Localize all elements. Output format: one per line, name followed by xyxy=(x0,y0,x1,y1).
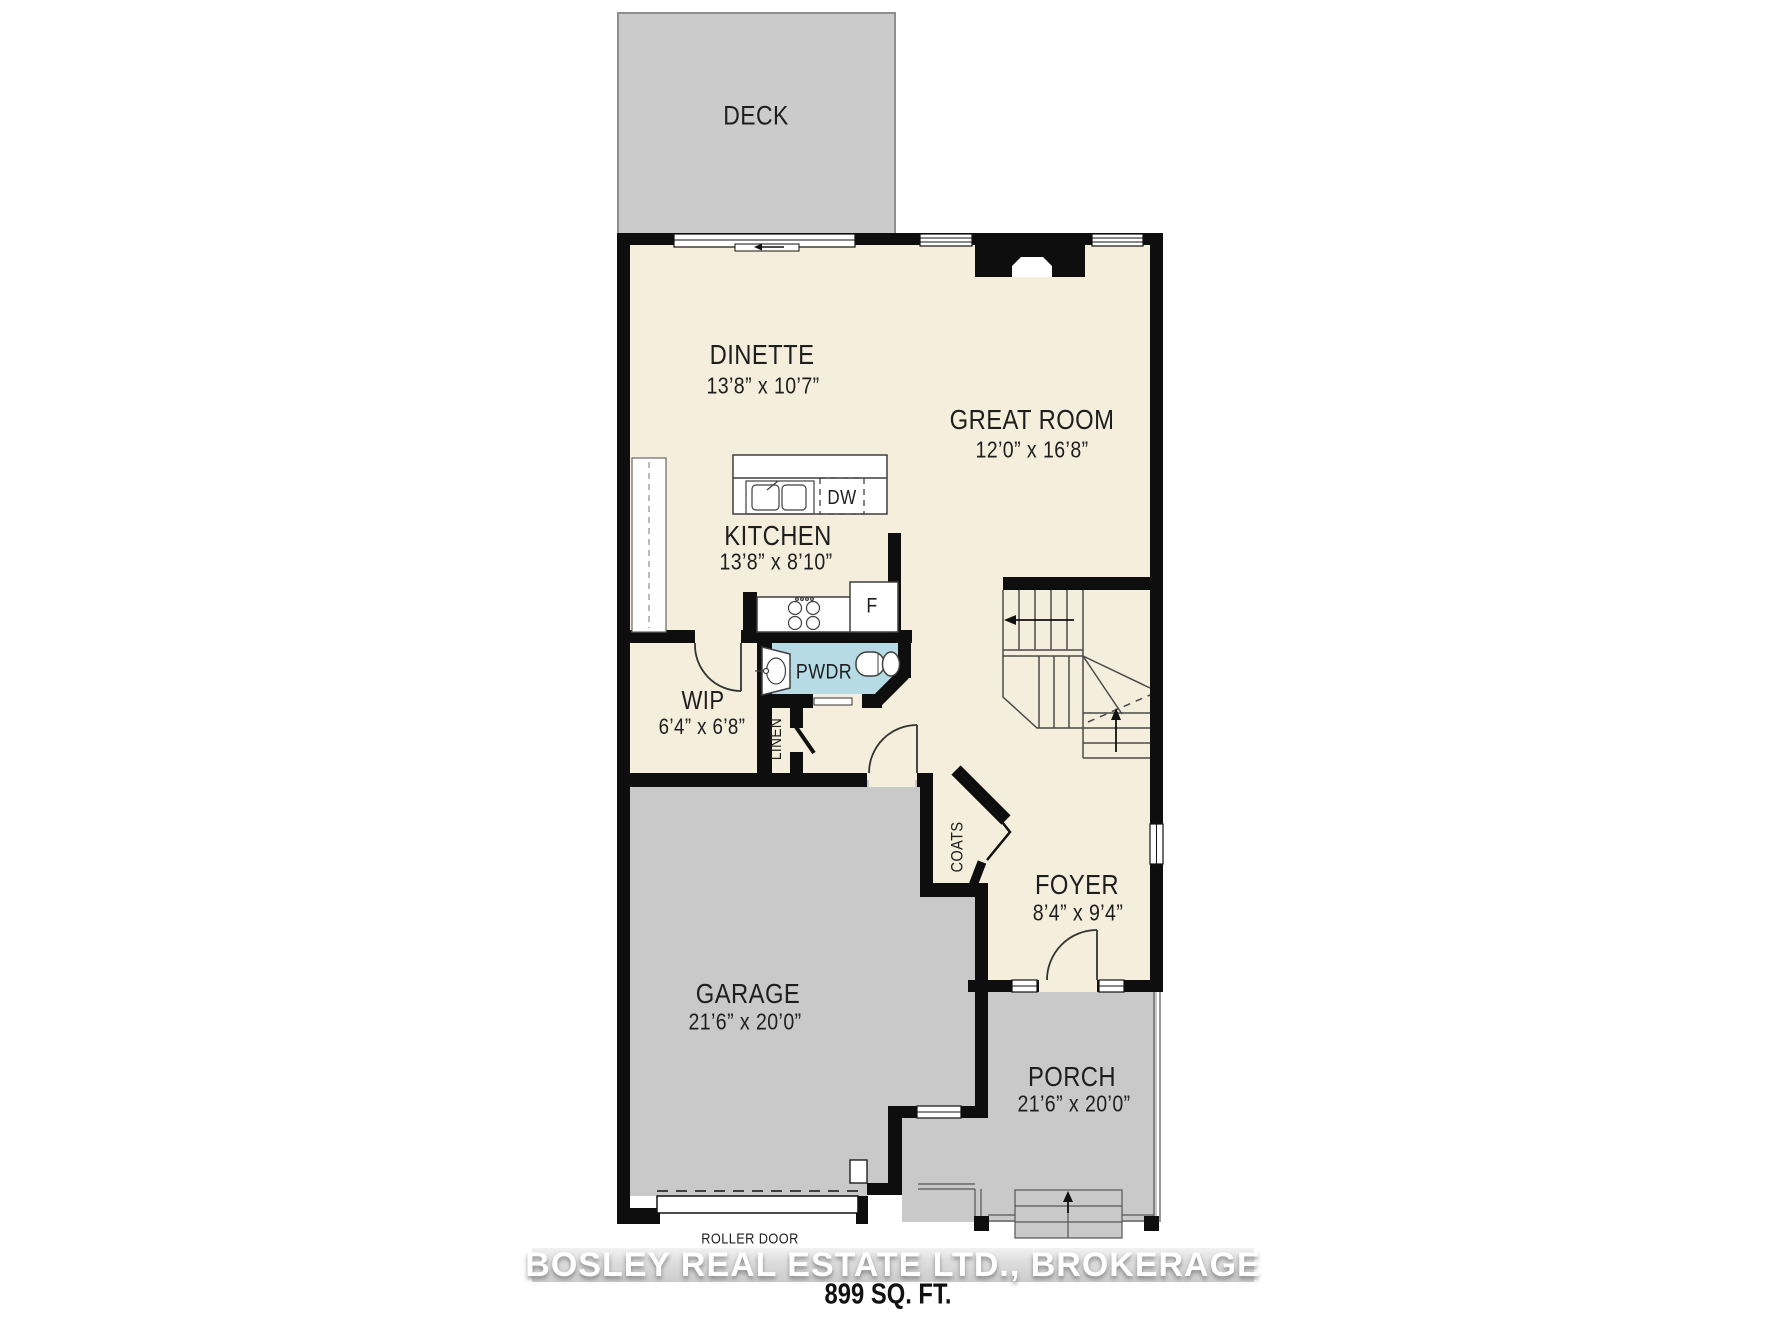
wip-dims: 6’4” x 6’8” xyxy=(659,716,746,738)
pwdr-door-leaf xyxy=(814,698,852,705)
pwdr-toilet xyxy=(856,652,900,676)
sidelight-right xyxy=(1099,980,1124,992)
watermark-band: BOSLEY REAL ESTATE LTD., BROKERAGE xyxy=(532,1248,1254,1282)
porch-post-right xyxy=(1144,1216,1159,1231)
front-door-opening xyxy=(1039,980,1097,992)
roller-door-label: ROLLER DOOR xyxy=(701,1232,798,1247)
foyer-dims: 8’4” x 9’4” xyxy=(1033,902,1124,925)
wip-door-opening xyxy=(695,630,741,643)
wip-label: WIP xyxy=(681,687,724,713)
kitchen-dims: 13’8” x 8’10” xyxy=(719,551,832,574)
porch-post-left xyxy=(974,1216,989,1231)
linen-label: LINEN xyxy=(769,718,785,760)
pwdr-label: PWDR xyxy=(796,662,852,683)
pantry-counter xyxy=(632,458,666,632)
dinette-dims: 13’8” x 10’7” xyxy=(706,375,819,398)
garage-side-door xyxy=(850,1160,867,1183)
fireplace-niche xyxy=(1012,257,1052,277)
deck-label: DECK xyxy=(723,103,788,130)
coats-label: COATS xyxy=(949,822,966,873)
window-top-left xyxy=(920,234,972,246)
porch-steps xyxy=(1015,1190,1122,1238)
sidelight-left xyxy=(1012,980,1037,992)
dishwasher-label: DW xyxy=(827,488,856,508)
kitchen-island xyxy=(733,455,887,514)
garage-door-opening xyxy=(869,773,915,787)
dinette-label: DINETTE xyxy=(710,341,815,369)
great-room-dims: 12’0” x 16’8” xyxy=(975,439,1088,462)
garage-label: GARAGE xyxy=(696,980,800,1008)
porch-label: PORCH xyxy=(1028,1063,1116,1091)
window-top-right xyxy=(1092,234,1143,246)
window-jog xyxy=(917,1106,961,1118)
floor-plan-page: DECK DINETTE 13’8” x 10’7” GREAT ROOM 12… xyxy=(0,0,1777,1333)
garage-dims: 21’6” x 20’0” xyxy=(688,1011,801,1034)
porch-dims: 21’6” x 20’0” xyxy=(1017,1093,1130,1116)
kitchen-label: KITCHEN xyxy=(724,522,831,550)
floor-plan-drawing xyxy=(0,0,1777,1333)
foyer-label: FOYER xyxy=(1035,871,1119,899)
fridge-label: F xyxy=(866,596,877,617)
window-foyer xyxy=(1150,824,1163,864)
great-room-label: GREAT ROOM xyxy=(950,406,1115,434)
area-label: 899 SQ. FT. xyxy=(825,1279,952,1312)
